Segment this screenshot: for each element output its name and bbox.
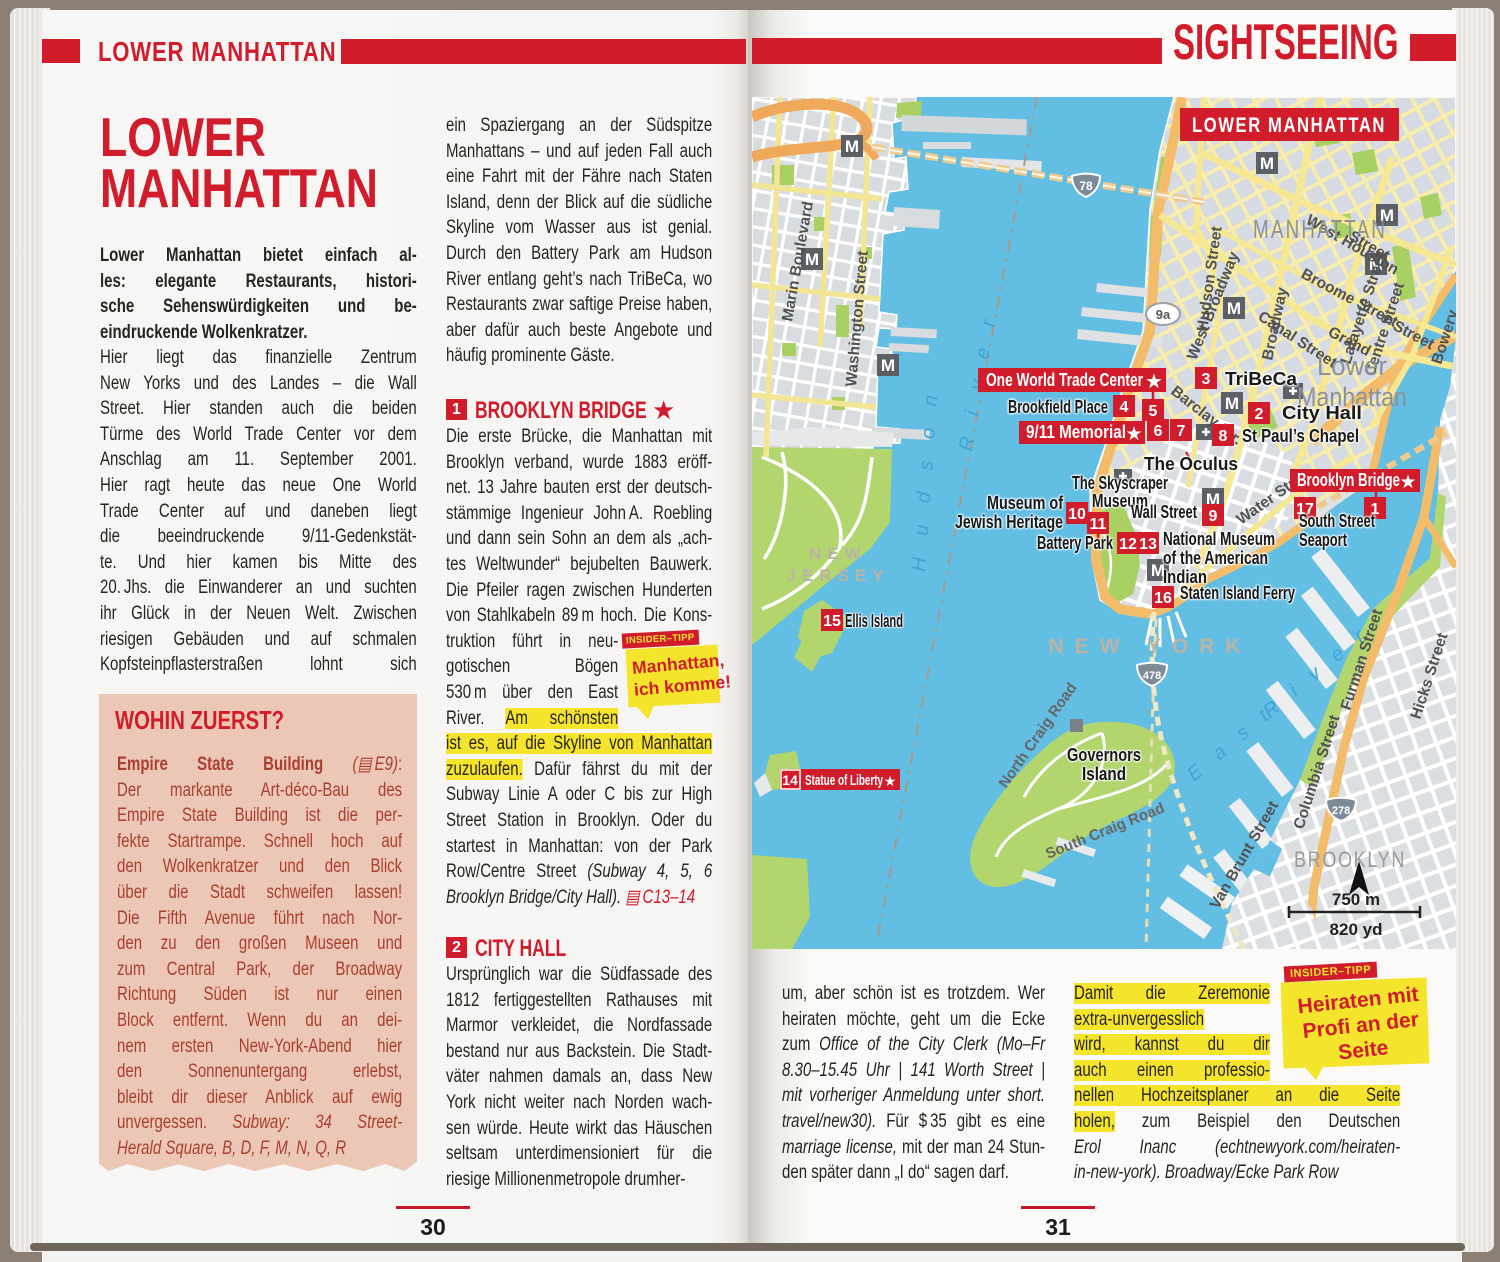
- svg-text:3: 3: [1202, 371, 1211, 388]
- svg-text:★: ★: [884, 773, 897, 789]
- svg-text:Staten Island Ferry: Staten Island Ferry: [1180, 582, 1295, 603]
- svg-text:16: 16: [1154, 590, 1172, 607]
- svg-text:750 m: 750 m: [1332, 890, 1380, 909]
- svg-text:M: M: [881, 356, 895, 375]
- svg-text:Seaport: Seaport: [1299, 529, 1347, 550]
- svg-text:JERSEY: JERSEY: [786, 566, 889, 585]
- svg-text:Lower: Lower: [1317, 351, 1387, 381]
- svg-text:M: M: [1225, 394, 1239, 413]
- svg-text:6: 6: [1154, 423, 1163, 440]
- svg-text:LOWER MANHATTAN: LOWER MANHATTAN: [1192, 114, 1386, 137]
- svg-text:NEW: NEW: [809, 544, 867, 563]
- svg-text:Brooklyn Bridge: Brooklyn Bridge: [1297, 470, 1400, 490]
- svg-text:7: 7: [1177, 423, 1186, 440]
- svg-text:M: M: [1227, 299, 1241, 318]
- svg-text:12: 12: [1119, 536, 1137, 553]
- svg-text:NEW YORK: NEW YORK: [1048, 635, 1251, 658]
- svg-text:2: 2: [1255, 406, 1264, 423]
- svg-text:14: 14: [782, 772, 798, 788]
- svg-text:11: 11: [1090, 516, 1107, 533]
- svg-text:Museum of: Museum of: [987, 492, 1064, 513]
- svg-text:5: 5: [1149, 403, 1158, 420]
- svg-text:10: 10: [1068, 506, 1086, 523]
- svg-text:Wall Street: Wall Street: [1131, 501, 1197, 522]
- svg-text:Ellis Island: Ellis Island: [845, 610, 903, 631]
- svg-text:One World Trade Center: One World Trade Center: [986, 370, 1143, 390]
- svg-text:St Paul’s Chapel: St Paul’s Chapel: [1242, 425, 1359, 446]
- svg-text:Brookfield Place: Brookfield Place: [1008, 396, 1108, 417]
- svg-text:478: 478: [1143, 670, 1161, 682]
- svg-text:M: M: [1260, 154, 1274, 173]
- svg-text:★: ★: [1125, 424, 1142, 445]
- svg-text:9/11 Memorial: 9/11 Memorial: [1026, 422, 1126, 442]
- svg-text:78: 78: [1079, 179, 1093, 193]
- svg-text:TriBeCa: TriBeCa: [1225, 368, 1298, 389]
- svg-text:Statue of Liberty: Statue of Liberty: [805, 772, 883, 789]
- svg-text:Jewish Heritage: Jewish Heritage: [955, 511, 1063, 532]
- svg-text:9a: 9a: [1156, 307, 1171, 322]
- svg-text:★: ★: [1399, 472, 1416, 493]
- svg-text:South Street: South Street: [1299, 510, 1375, 531]
- svg-text:9: 9: [1209, 508, 1218, 525]
- svg-text:Battery Park: Battery Park: [1037, 532, 1113, 553]
- svg-text:The Oculus: The Oculus: [1144, 453, 1238, 474]
- svg-text:City Hall: City Hall: [1282, 402, 1362, 423]
- svg-text:Island: Island: [1082, 763, 1126, 784]
- svg-text:278: 278: [1332, 805, 1350, 817]
- svg-text:★: ★: [1145, 371, 1163, 393]
- svg-text:BROOKLYN: BROOKLYN: [1294, 847, 1406, 872]
- svg-text:MANHATTAN: MANHATTAN: [1253, 214, 1387, 244]
- svg-text:National Museum: National Museum: [1163, 528, 1275, 549]
- svg-text:M: M: [845, 137, 859, 156]
- svg-text:820 yd: 820 yd: [1330, 920, 1383, 939]
- svg-text:15: 15: [823, 613, 841, 630]
- svg-text:13: 13: [1139, 536, 1157, 553]
- svg-text:4: 4: [1120, 399, 1129, 416]
- svg-text:of the American: of the American: [1163, 547, 1268, 568]
- svg-text:8: 8: [1219, 428, 1228, 445]
- svg-text:Governors: Governors: [1067, 744, 1141, 765]
